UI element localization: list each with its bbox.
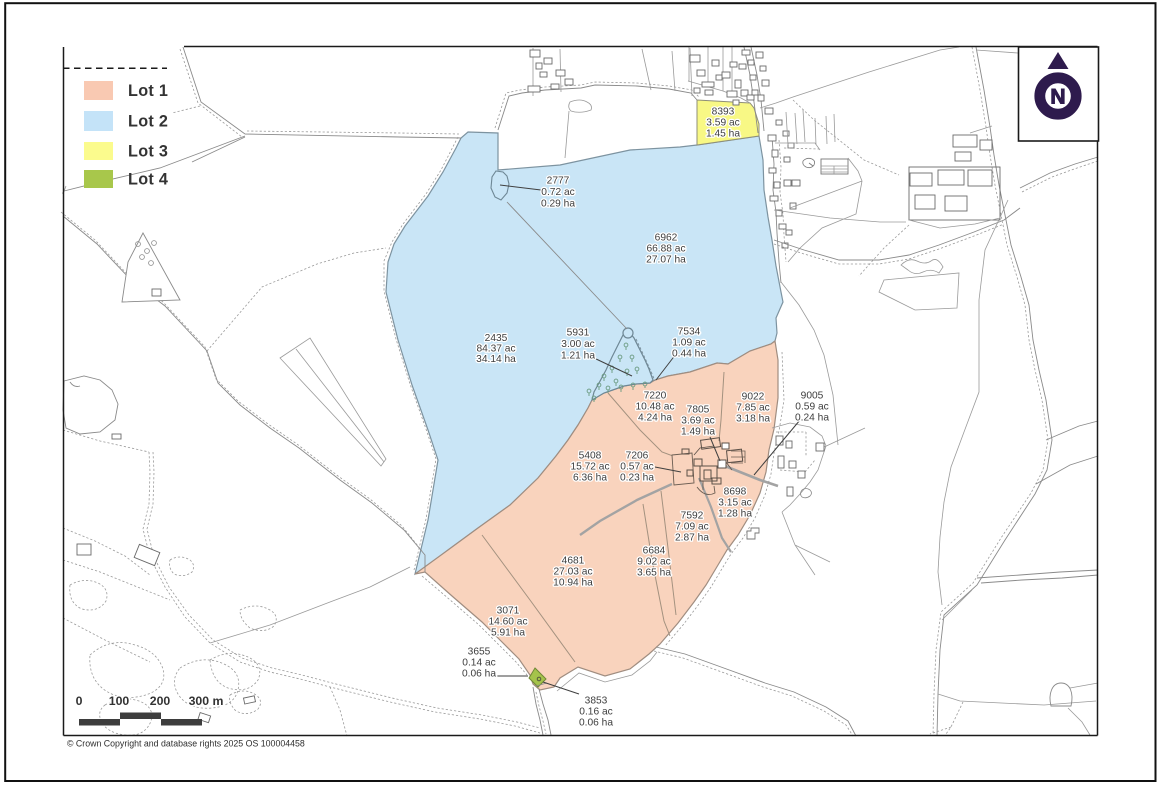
svg-text:200: 200 [150,694,171,708]
svg-text:100: 100 [109,694,130,708]
svg-text:Lot 3: Lot 3 [128,143,168,161]
svg-text:Lot 2: Lot 2 [128,113,168,131]
svg-text:0: 0 [76,694,83,708]
svg-text:N: N [1050,86,1065,109]
svg-text:© Crown Copyright and database: © Crown Copyright and database rights 20… [67,739,305,749]
svg-text:300 m: 300 m [189,694,224,708]
svg-text:Lot 4: Lot 4 [128,171,168,189]
svg-text:Lot 1: Lot 1 [128,82,168,100]
